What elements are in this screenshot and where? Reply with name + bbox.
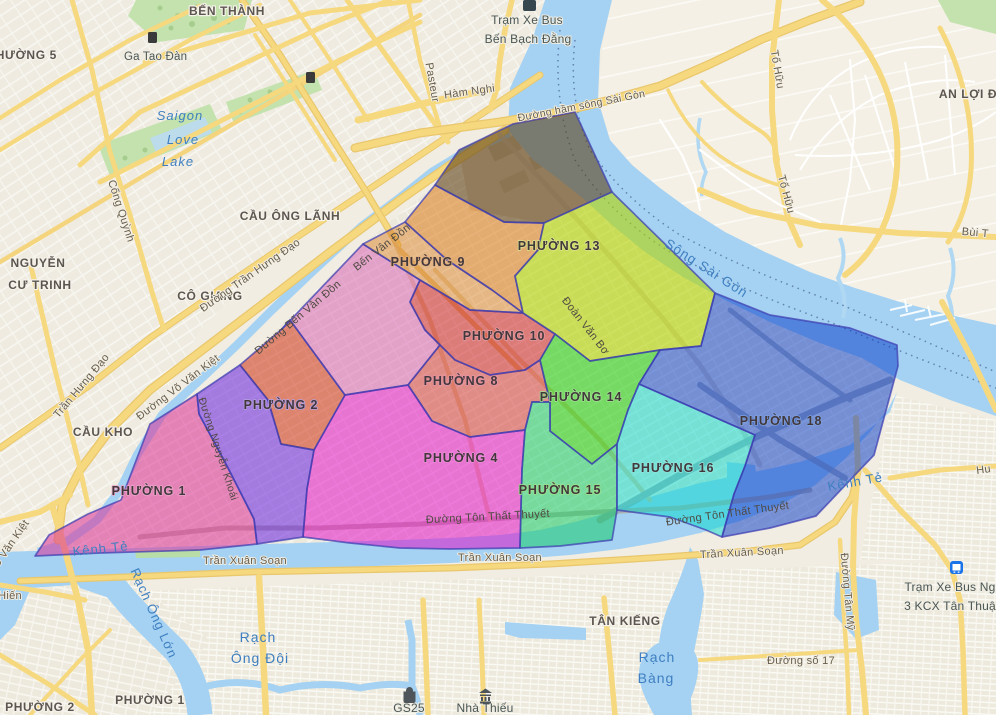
- svg-text:Bến Bạch Đằng: Bến Bạch Đằng: [485, 31, 572, 46]
- svg-text:Bàng: Bàng: [638, 670, 675, 686]
- svg-text:PHƯỜNG 4: PHƯỜNG 4: [424, 450, 499, 465]
- svg-text:AN LỢI Đ: AN LỢI Đ: [939, 87, 996, 101]
- svg-text:NGUYỄN: NGUYỄN: [11, 255, 66, 270]
- svg-text:Trạm Xe Bus Ng: Trạm Xe Bus Ng: [904, 580, 995, 594]
- svg-text:GS25: GS25: [393, 701, 425, 715]
- svg-text:Đường số 17: Đường số 17: [767, 655, 835, 667]
- svg-text:PHƯỜNG 15: PHƯỜNG 15: [519, 482, 602, 497]
- svg-text:Hu: Hu: [975, 463, 991, 477]
- svg-text:PHƯỜNG 9: PHƯỜNG 9: [391, 254, 466, 269]
- svg-text:PHƯỜNG 16: PHƯỜNG 16: [632, 460, 715, 475]
- svg-text:CƯ TRINH: CƯ TRINH: [8, 278, 71, 292]
- svg-text:3 KCX Tân Thuậ: 3 KCX Tân Thuậ: [904, 599, 996, 613]
- svg-text:PHƯỜNG 18: PHƯỜNG 18: [740, 413, 823, 428]
- svg-text:CẦU ÔNG LÃNH: CẦU ÔNG LÃNH: [240, 208, 341, 223]
- svg-text:Trần Xuân Soạn: Trần Xuân Soạn: [458, 552, 542, 564]
- svg-text:PHƯỜNG 5: PHƯỜNG 5: [0, 47, 57, 62]
- svg-text:Saigon: Saigon: [157, 108, 203, 123]
- svg-text:Ga Tao Đàn: Ga Tao Đàn: [124, 51, 187, 63]
- svg-text:Rạch: Rạch: [639, 649, 676, 665]
- svg-text:PHƯỜNG 1: PHƯỜNG 1: [112, 483, 187, 498]
- svg-text:PHƯỜNG 2: PHƯỜNG 2: [244, 397, 319, 412]
- svg-text:Love: Love: [167, 132, 199, 147]
- svg-text:PHƯỜNG 10: PHƯỜNG 10: [463, 328, 546, 343]
- svg-text:Bùi T: Bùi T: [961, 226, 989, 240]
- svg-text:Trần Xuân Soạn: Trần Xuân Soạn: [203, 555, 287, 567]
- svg-text:Hiến: Hiến: [0, 590, 22, 602]
- svg-text:TÂN KIẾNG: TÂN KIẾNG: [589, 613, 660, 628]
- svg-text:PHƯỜNG 13: PHƯỜNG 13: [518, 238, 601, 253]
- svg-text:Lake: Lake: [162, 154, 194, 169]
- svg-text:BẾN THÀNH: BẾN THÀNH: [189, 3, 265, 18]
- svg-text:PHƯỜNG 8: PHƯỜNG 8: [424, 373, 499, 388]
- svg-text:Trạm Xe Bus: Trạm Xe Bus: [491, 13, 563, 27]
- svg-text:CẦU KHO: CẦU KHO: [73, 424, 133, 439]
- svg-text:PHƯỜNG 14: PHƯỜNG 14: [540, 389, 623, 404]
- svg-text:Rạch: Rạch: [240, 629, 277, 645]
- svg-text:PHƯỜNG 2: PHƯỜNG 2: [5, 699, 75, 714]
- svg-text:PHƯỜNG 1: PHƯỜNG 1: [115, 692, 185, 707]
- svg-text:Ông Đội: Ông Đội: [231, 650, 289, 666]
